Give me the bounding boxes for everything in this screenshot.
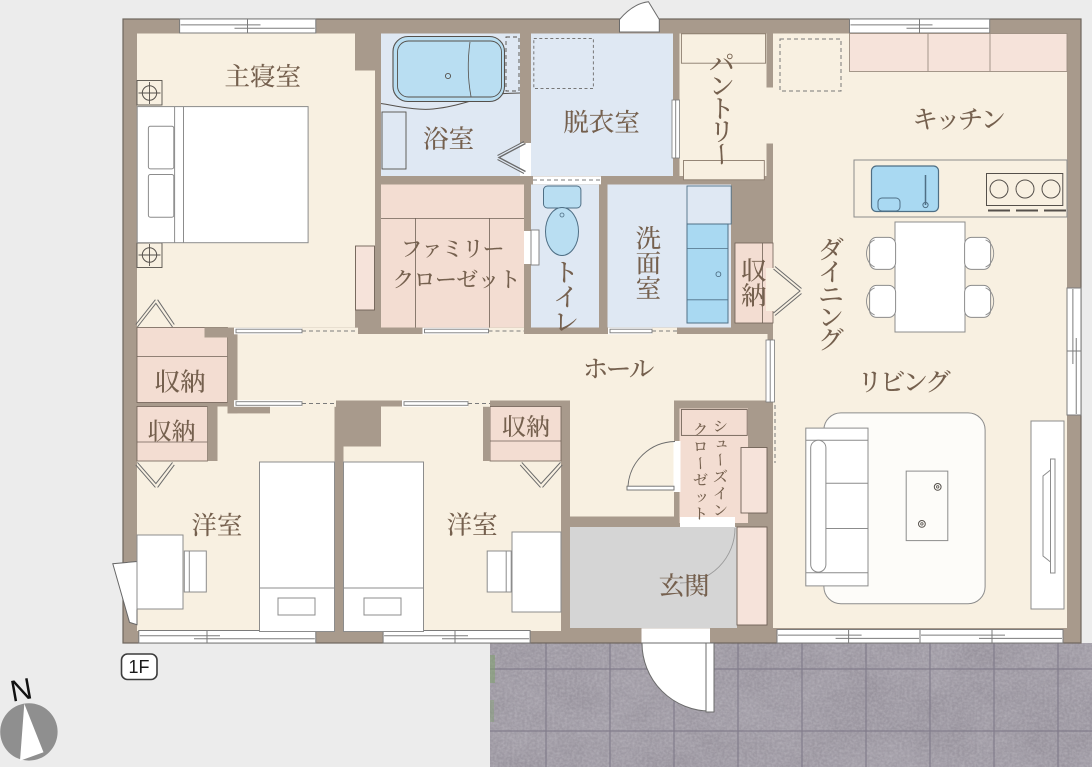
svg-text:1F: 1F xyxy=(128,657,149,677)
